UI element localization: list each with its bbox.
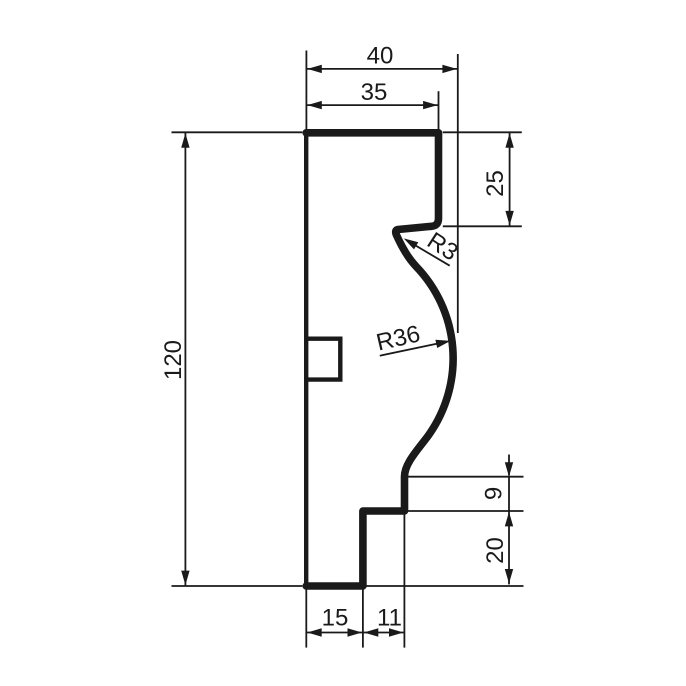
svg-text:120: 120: [160, 340, 187, 380]
svg-text:9: 9: [481, 487, 508, 500]
svg-text:40: 40: [367, 43, 394, 70]
svg-text:R36: R36: [374, 320, 423, 356]
svg-text:R3: R3: [422, 227, 462, 266]
svg-text:25: 25: [482, 170, 509, 197]
svg-text:35: 35: [361, 79, 388, 106]
svg-text:15: 15: [322, 605, 349, 632]
svg-text:20: 20: [482, 537, 509, 564]
svg-text:11: 11: [377, 605, 402, 632]
